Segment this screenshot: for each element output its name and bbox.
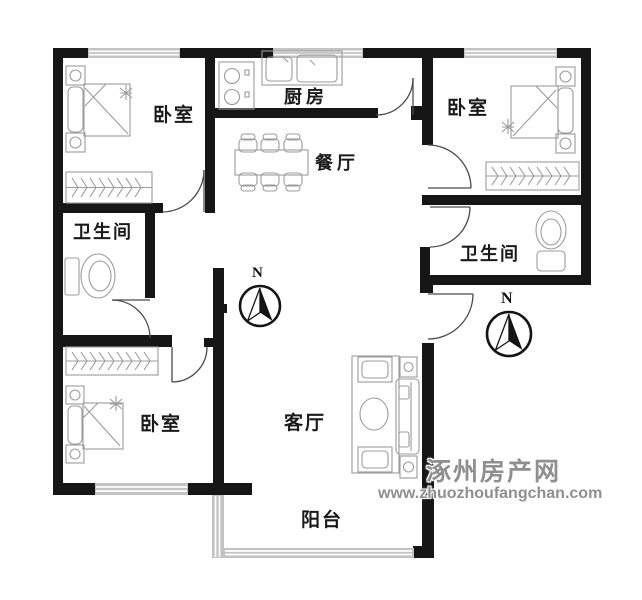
door-bedroom-top-right [428,145,471,188]
door-bathroom-left [112,300,150,338]
toilet-right [536,211,566,271]
room-label-bedroom-top-left: 卧室 [153,106,195,125]
stove [219,62,254,109]
wardrobe-top-right [486,162,579,190]
watermark-site-name: 涿州房产网 [426,460,561,485]
balcony-rail-left [212,495,224,558]
door-bedroom-top-left [162,170,204,212]
window-bedroom-top-right [464,48,557,58]
compass-center [240,286,280,326]
door-bathroom-right [430,207,470,247]
door-living-side [428,294,473,339]
bed-top-left [66,66,132,152]
sofa-set [352,356,419,478]
door-bedroom-bottom-left [172,347,207,382]
room-label-balcony: 阳台 [301,511,343,530]
room-label-dining-room: 餐厅 [315,154,359,172]
window-bedroom-top-left [88,48,180,58]
wardrobe-bottom-left [66,347,158,375]
room-label-bedroom-bottom-left: 卧室 [140,415,182,434]
dining-table-set [235,134,308,191]
room-label-bathroom-right: 卫生间 [460,245,520,263]
room-label-bedroom-top-right: 卧室 [447,99,489,118]
north-label-right: N [501,291,513,307]
room-label-kitchen: 厨房 [284,88,328,106]
bed-top-right [502,67,575,153]
plant-icon [110,396,122,411]
watermark-url: www.zhuozhoufangchan.com [378,486,602,502]
wardrobe-top-left [66,172,152,203]
bed-bottom-left [66,386,123,463]
door-entry [376,78,413,115]
compass-right [487,312,531,356]
north-label-center: N [252,266,263,281]
room-label-bathroom-left: 卫生间 [73,223,133,241]
plant-icon [502,119,514,134]
room-label-living-room: 客厅 [284,414,326,433]
balcony-rail-bottom [224,548,414,558]
window-bedroom-bottom-left [95,483,188,495]
floor-plan: 卧室 厨房 餐厅 卧室 卫生间 卫生间 卧室 客厅 阳台 N N 涿州房产网 w… [0,0,642,600]
toilet-left [65,254,115,298]
